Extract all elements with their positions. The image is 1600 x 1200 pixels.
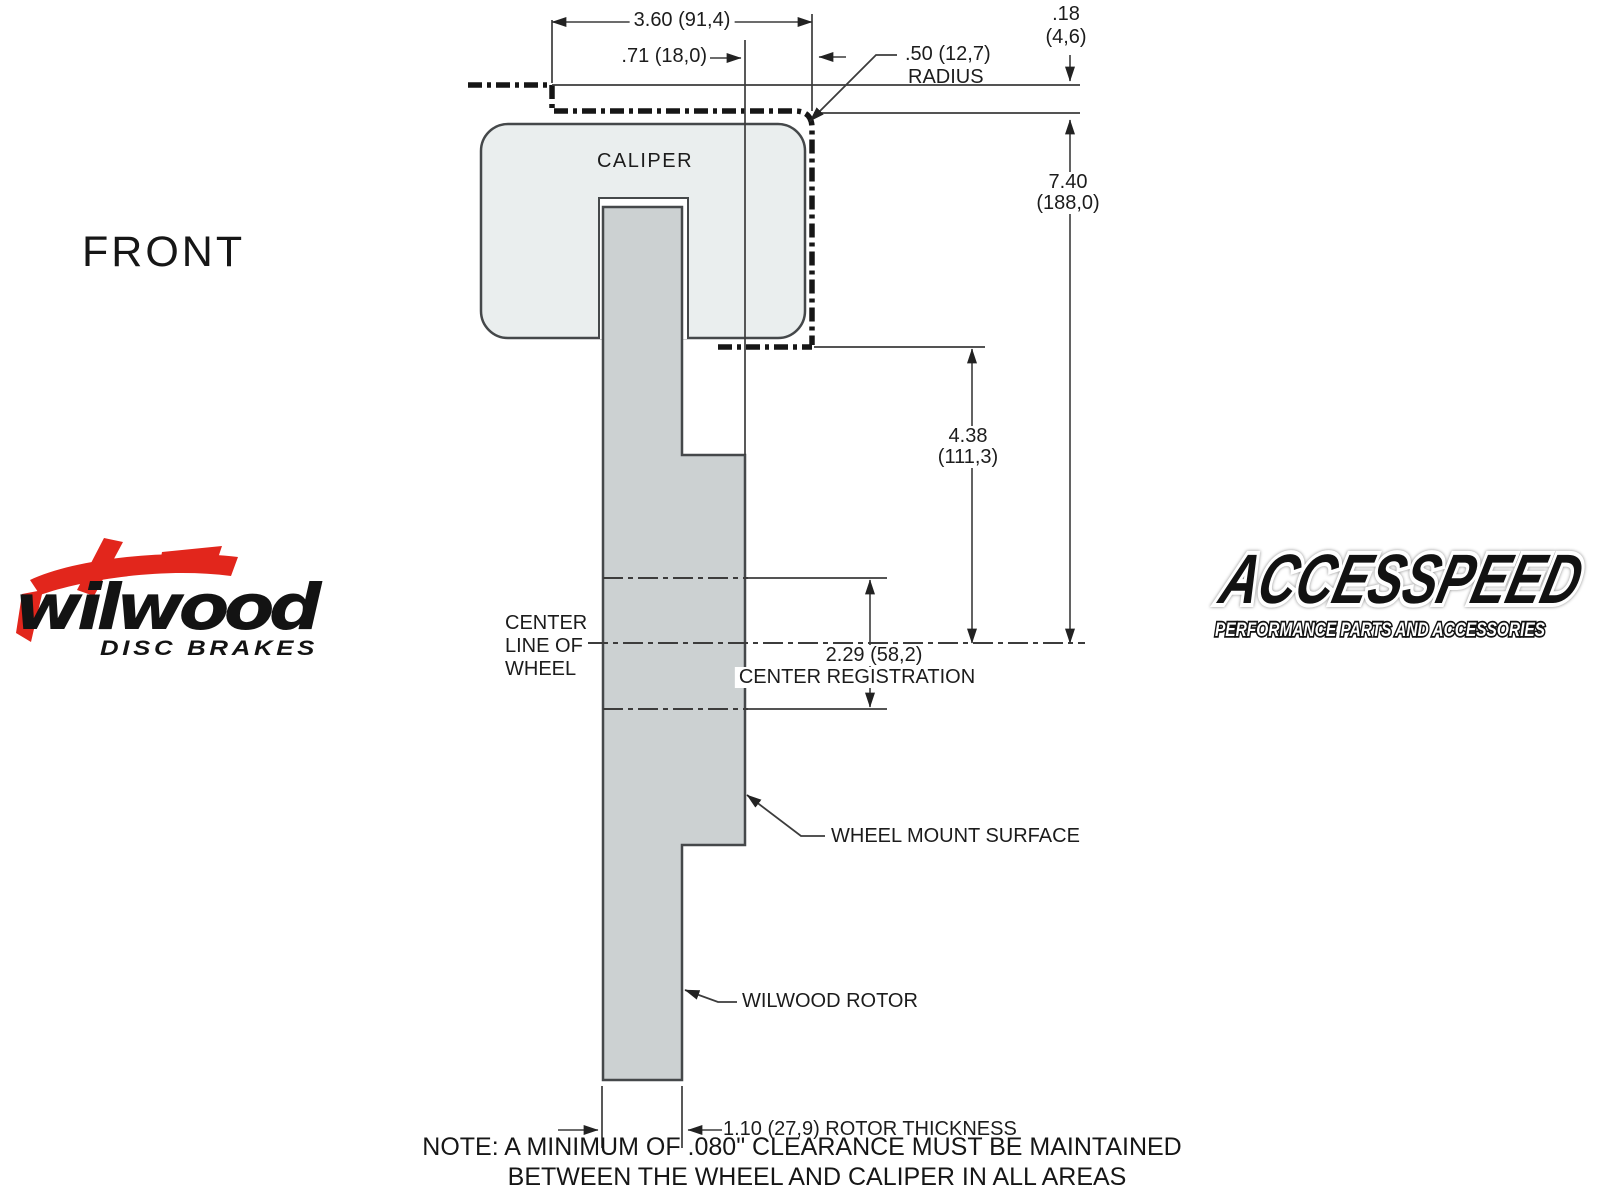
center-line-label-2: LINE OF (505, 635, 587, 658)
note-line-1: NOTE: A MINIMUM OF .080" CLEARANCE MUST … (422, 1137, 1181, 1158)
dim-registration-value: 2.29 (58,2) (822, 645, 927, 666)
dim-caliper-width: 3.60 (91,4) (630, 10, 735, 31)
dim-overall-height-in: 7.40 (1036, 172, 1099, 193)
accesspeed-tagline: PERFORMANCE PARTS AND ACCESSORIES (1215, 620, 1545, 641)
dim-clearance-value: .18 (1052, 4, 1080, 25)
center-line-label: CENTER LINE OF WHEEL (505, 612, 587, 681)
accesspeed-name: ACCESSPEED (1212, 541, 1591, 619)
center-line-label-3: WHEEL (505, 658, 587, 681)
accesspeed-logo-art: ACCESSPEED PERFORMANCE PARTS AND ACCESSO… (1195, 527, 1595, 649)
dim-overall-height: 7.40 (188,0) (1032, 172, 1103, 214)
note-line-2: BETWEEN THE WHEEL AND CALIPER IN ALL ARE… (508, 1167, 1127, 1188)
dim-clearance-mm: (4,6) (1045, 27, 1086, 48)
center-line-label-1: CENTER (505, 612, 587, 635)
brake-dimension-diagram: FRONT CALIPER 3.60 (91,4) .71 (18,0) .50… (0, 0, 1600, 1200)
leader-radius (810, 55, 897, 121)
dim-registration-word: CENTER REGISTRATION (735, 667, 979, 688)
dim-caliper-depth: 4.38 (111,3) (934, 426, 1002, 468)
wilwood-rotor-label: WILWOOD ROTOR (742, 991, 918, 1012)
dim-overall-height-mm: (188,0) (1036, 193, 1099, 214)
wilwood-script: wilwood (14, 571, 323, 644)
wheel-mount-label: WHEEL MOUNT SURFACE (831, 826, 1080, 847)
dim-caliper-depth-in: 4.38 (938, 426, 998, 447)
dim-radius-word: RADIUS (908, 67, 984, 88)
view-label: FRONT (82, 242, 245, 263)
accesspeed-wordmark: ACCESSPEED (1212, 541, 1591, 619)
dim-caliper-depth-mm: (111,3) (938, 447, 998, 468)
leader-wheel-mount (747, 795, 825, 836)
wilwood-logo-art: wilwood DISC BRAKES (12, 532, 332, 664)
caliper-label: CALIPER (597, 151, 693, 172)
wilwood-tagline: DISC BRAKES (100, 637, 318, 660)
leader-wilwood-rotor (685, 990, 737, 1002)
accesspeed-logo: ACCESSPEED PERFORMANCE PARTS AND ACCESSO… (1195, 527, 1595, 649)
wilwood-logo: wilwood DISC BRAKES (12, 532, 332, 664)
dim-radius-value: .50 (12,7) (905, 44, 991, 65)
dim-pad-offset: .71 (18,0) (621, 46, 707, 67)
